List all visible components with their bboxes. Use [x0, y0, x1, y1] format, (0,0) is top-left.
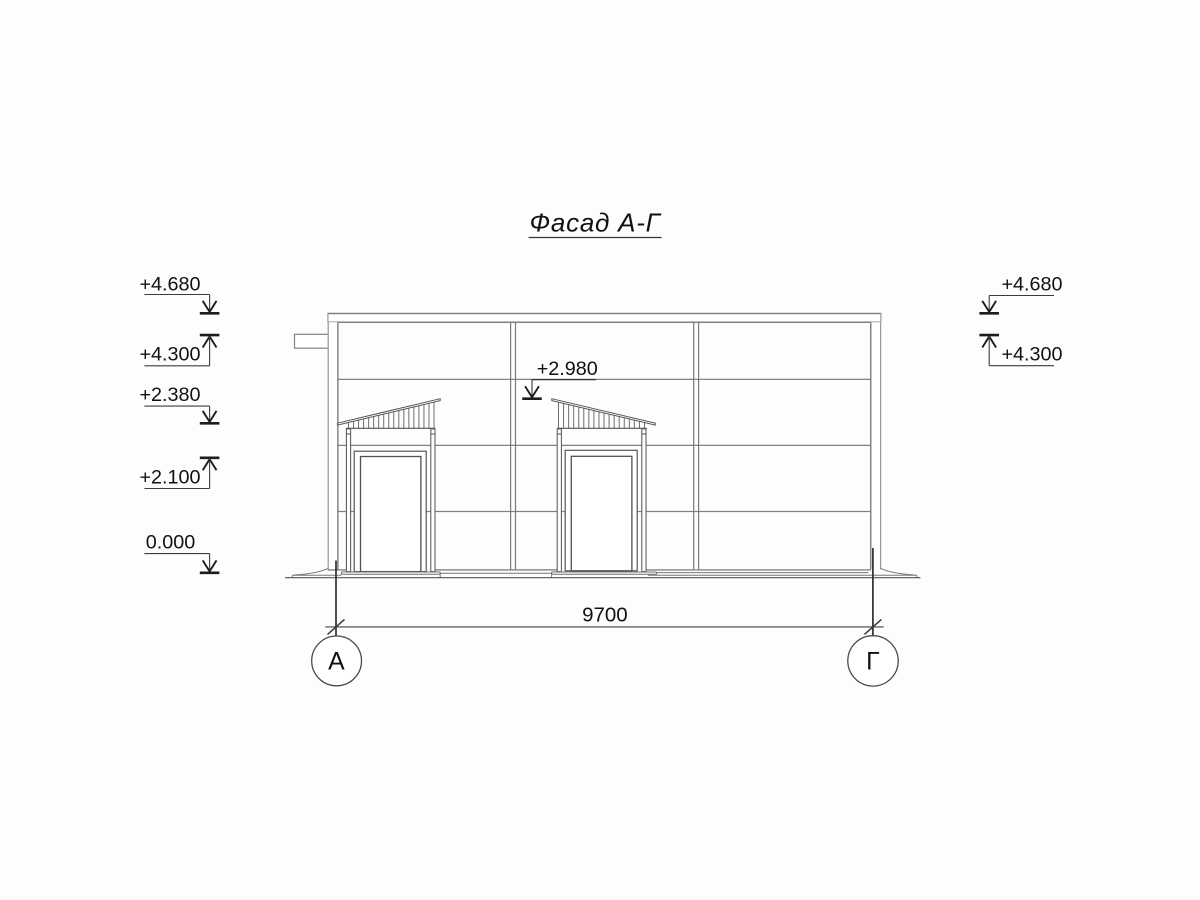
svg-text:+4.300: +4.300: [140, 343, 201, 365]
svg-text:9700: 9700: [582, 603, 628, 626]
svg-text:+2.980: +2.980: [537, 358, 598, 380]
svg-text:Г: Г: [866, 648, 879, 675]
svg-text:+4.680: +4.680: [1002, 274, 1063, 296]
svg-text:+2.100: +2.100: [140, 466, 201, 488]
svg-text:0.000: 0.000: [146, 532, 196, 554]
svg-text:+2.380: +2.380: [140, 384, 201, 406]
svg-text:+4.680: +4.680: [140, 273, 201, 295]
svg-text:Фасад А-Г: Фасад А-Г: [529, 208, 661, 238]
svg-text:+4.300: +4.300: [1002, 343, 1063, 365]
svg-text:А: А: [328, 649, 345, 676]
